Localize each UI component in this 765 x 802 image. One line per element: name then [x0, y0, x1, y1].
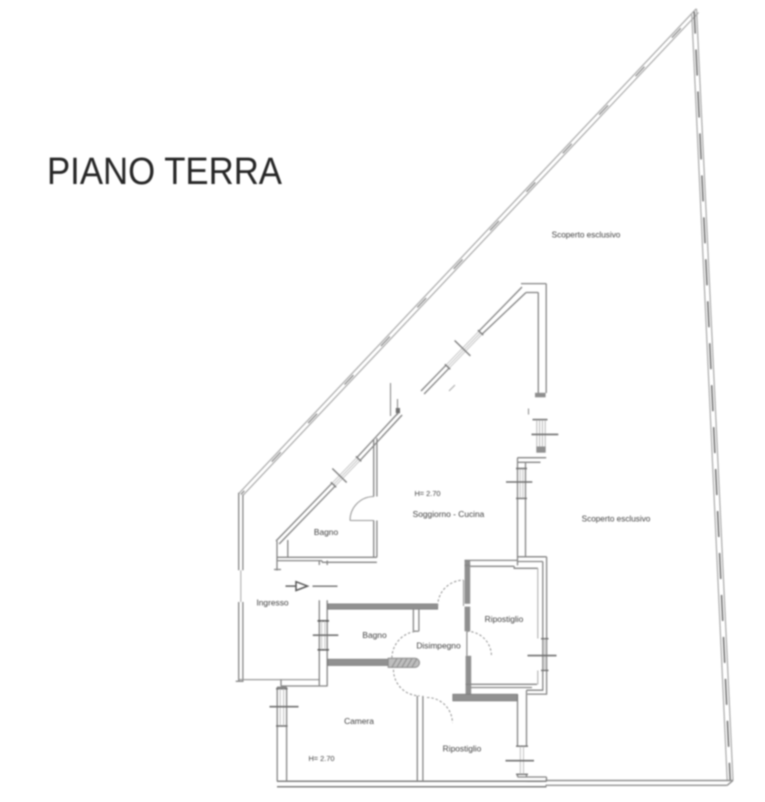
svg-text:Ripostiglio: Ripostiglio	[485, 614, 524, 624]
svg-text:Disimpegno: Disimpegno	[416, 641, 461, 651]
svg-text:Soggiorno - Cucina: Soggiorno - Cucina	[413, 509, 485, 519]
svg-text:Bagno: Bagno	[362, 630, 387, 640]
svg-text:H= 2.70: H= 2.70	[414, 489, 440, 498]
svg-text:H= 2.70: H= 2.70	[308, 754, 334, 763]
svg-text:Camera: Camera	[344, 716, 374, 726]
svg-text:Ingresso: Ingresso	[256, 598, 288, 608]
svg-text:Bagno: Bagno	[314, 527, 339, 537]
svg-text:Ripostiglio: Ripostiglio	[443, 744, 482, 754]
svg-text:Scoperto esclusivo: Scoperto esclusivo	[552, 231, 621, 240]
svg-text:PIANO TERRA: PIANO TERRA	[47, 151, 283, 193]
svg-text:Scoperto esclusivo: Scoperto esclusivo	[582, 515, 651, 524]
